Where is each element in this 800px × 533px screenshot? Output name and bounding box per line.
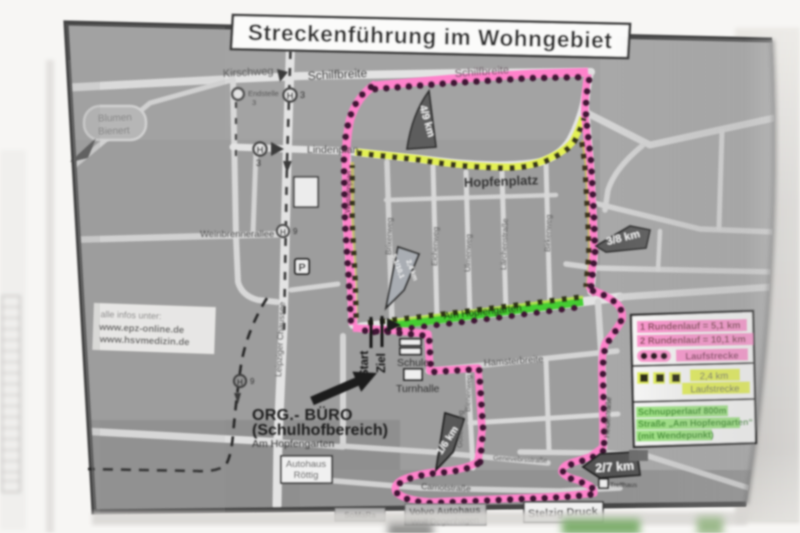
svg-text:Birkenweg: Birkenweg [543,214,553,252]
svg-text:H: H [237,377,243,387]
svg-text:P: P [298,262,305,274]
svg-text:Bienenweg: Bienenweg [463,375,473,412]
svg-text:3: 3 [252,98,256,107]
svg-text:Gollenstieg: Gollenstieg [455,410,465,448]
svg-text:Lindenplan: Lindenplan [307,144,359,156]
svg-text:9: 9 [250,377,255,386]
svg-text:Westernplan: Westernplan [343,171,353,213]
svg-text:9: 9 [293,227,298,236]
svg-text:H: H [257,145,264,156]
svg-text:3: 3 [256,158,261,168]
svg-text:Ziel: Ziel [376,353,388,373]
svg-text:Brixenweg: Brixenweg [384,217,394,255]
svg-text:Endstelle: Endstelle [248,89,279,98]
svg-text:Am Hopfengarten: Am Hopfengarten [252,438,334,450]
svg-text:Lärchenstraße: Lärchenstraße [499,218,510,270]
svg-text:Hopfenplatz: Hopfenplatz [464,172,539,190]
svg-text:Autohaus: Autohaus [286,459,326,470]
svg-text:Ulmenweg: Ulmenweg [463,234,473,272]
svg-text:Eichenweg: Eichenweg [430,227,440,266]
svg-text:Röttig: Röttig [294,470,319,481]
svg-text:H: H [280,227,286,237]
svg-text:(Schulhofbereich): (Schulhofbereich) [252,422,388,439]
svg-text:3: 3 [300,90,305,100]
svg-text:H: H [287,91,294,102]
svg-text:Turnhalle: Turnhalle [396,383,440,395]
svg-text:Schule: Schule [397,357,429,369]
